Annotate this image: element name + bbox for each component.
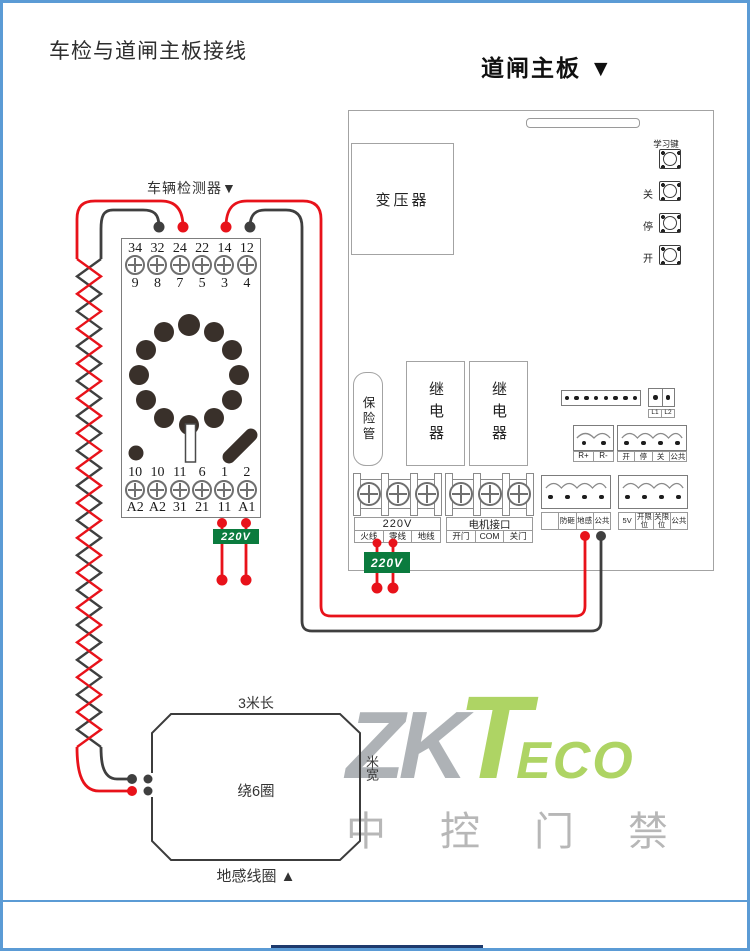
watermark-eco: ECO — [516, 735, 635, 787]
screw-terminal[interactable] — [237, 255, 257, 275]
detector-top-screws — [124, 255, 258, 275]
bottom-divider-line — [3, 900, 747, 902]
remote-connector — [573, 425, 614, 451]
common-label: 公共 — [669, 451, 687, 462]
stop-label: 停 — [634, 451, 652, 462]
board-220v-tag: 220V — [364, 552, 410, 573]
coil-turns-label: 绕6圈 — [151, 780, 361, 801]
ground-wire-label: 地线 — [411, 530, 441, 543]
com-label: COM — [475, 530, 505, 543]
screw-terminal[interactable] — [449, 482, 473, 506]
open-label: 开 — [617, 451, 635, 462]
l1l2-labels: L1 L2 — [648, 409, 675, 418]
screw-terminal[interactable] — [478, 482, 502, 506]
screw-terminal[interactable] — [214, 255, 234, 275]
relay-box: 继电器 — [469, 361, 528, 466]
terminal-number: 11 — [169, 465, 191, 481]
close-limit-label: 关限位 — [653, 512, 671, 530]
sensor-connector — [541, 475, 611, 509]
terminal-number: 1 — [213, 465, 235, 481]
wiring-diagram-page: 车检与道闸主板接线 道闸主板 ▼ 车辆检测器▼ ZKTECO 中 控 门 禁 变… — [0, 0, 750, 951]
motor-terminal-labels: 开门 COM 关门 — [446, 530, 533, 543]
l2-label: L2 — [661, 409, 675, 418]
screw-terminal[interactable] — [147, 255, 167, 275]
screw-terminal[interactable] — [147, 480, 167, 500]
control-connector — [617, 425, 687, 451]
terminal-number: 3 — [213, 276, 235, 292]
terminal-number: 5 — [191, 276, 213, 292]
screw-terminal[interactable] — [357, 482, 381, 506]
relay-box: 继电器 — [406, 361, 465, 466]
screw-terminal[interactable] — [237, 480, 257, 500]
bottom-navy-bar — [271, 945, 483, 951]
screw-terminal[interactable] — [507, 482, 531, 506]
terminal-number: 2 — [236, 465, 258, 481]
open-door-label: 开门 — [446, 530, 476, 543]
power-terminal-block — [354, 479, 441, 509]
terminal-number: 10 — [124, 465, 146, 481]
terminal-number: 6 — [191, 465, 213, 481]
sensor-labels: 防砸 地感 公共 — [541, 512, 611, 530]
terminal-number: A2 — [124, 500, 146, 516]
watermark-chinese: 中 控 门 禁 — [346, 799, 668, 857]
detector-220v-tag: 220V — [213, 529, 259, 544]
screw-terminal[interactable] — [386, 482, 410, 506]
watermark-char: 控 — [440, 799, 480, 857]
relay-label: 继电器 — [488, 381, 509, 447]
terminal-number: 9 — [124, 276, 146, 292]
close-label: 关 — [652, 451, 670, 462]
coil-name-label: 地感线圈 ▲ — [151, 865, 361, 886]
ground-sensor-label: 地感 — [576, 512, 594, 530]
terminal-number: 4 — [236, 276, 258, 292]
transformer-label: 变压器 — [375, 189, 429, 210]
anti-smash-label: 防砸 — [558, 512, 576, 530]
coil-width-label: 米宽 — [362, 755, 381, 781]
screw-terminal[interactable] — [192, 255, 212, 275]
remote-labels: R+ R- — [573, 451, 614, 462]
screw-terminal[interactable] — [170, 255, 190, 275]
board-top-slot — [526, 118, 640, 128]
screw-terminal[interactable] — [192, 480, 212, 500]
learn-button[interactable] — [659, 149, 681, 169]
l1-label: L1 — [648, 409, 662, 418]
open-button[interactable] — [659, 245, 681, 265]
motor-terminal-title: 电机接口 — [446, 517, 533, 531]
terminal-number: 21 — [191, 500, 213, 516]
terminal-number: 7 — [169, 276, 191, 292]
terminal-number: 10 — [146, 465, 168, 481]
terminal-number: 8 — [146, 276, 168, 292]
detector-bottom-pins: A2 A2 31 21 11 A1 — [124, 500, 258, 516]
zkteco-logo: ZKTECO — [346, 679, 668, 797]
terminal-number: A1 — [236, 500, 258, 516]
board-title: 道闸主板 ▼ — [481, 49, 614, 83]
close-door-label: 关门 — [503, 530, 533, 543]
screw-terminal[interactable] — [125, 255, 145, 275]
close-button[interactable] — [659, 181, 681, 201]
terminal-number: A2 — [146, 500, 168, 516]
detector-top-pins: 9 8 7 5 3 4 — [124, 276, 258, 292]
power-terminal-labels: 火线 零线 地线 — [354, 530, 441, 543]
fuse-box: 保险管 — [353, 372, 383, 466]
screw-terminal[interactable] — [125, 480, 145, 500]
control-labels: 开 停 关 公共 — [617, 451, 687, 462]
5v-label: 5V — [618, 512, 636, 530]
watermark-char: 禁 — [628, 799, 668, 857]
screw-terminal[interactable] — [170, 480, 190, 500]
detector-graphics — [121, 295, 261, 470]
screw-terminal[interactable] — [415, 482, 439, 506]
watermark-char: 门 — [534, 799, 574, 857]
stop-button[interactable] — [659, 213, 681, 233]
fuse-label: 保险管 — [359, 396, 378, 443]
zkteco-watermark: ZKTECO 中 控 门 禁 — [346, 679, 668, 857]
limit-connector — [618, 475, 688, 509]
neutral-wire-label: 零线 — [383, 530, 413, 543]
terminal-number: 31 — [169, 500, 191, 516]
blank-label — [541, 512, 559, 530]
detector-bottom-numbers: 10 10 11 6 1 2 — [124, 465, 258, 481]
live-wire-label: 火线 — [354, 530, 384, 543]
relay-label: 继电器 — [425, 381, 446, 447]
coil-length-label: 3米长 — [151, 693, 361, 713]
power-terminal-title: 220V — [354, 517, 441, 531]
detector-title: 车辆检测器▼ — [147, 178, 237, 198]
limit-labels: 5V 开限位 关限位 公共 — [618, 512, 688, 530]
close-button-label: 关 — [643, 186, 653, 201]
motor-terminal-block — [446, 479, 533, 509]
limit-common-label: 公共 — [670, 512, 688, 530]
pin-header — [561, 390, 641, 406]
r-plus-label: R+ — [573, 451, 594, 462]
page-title: 车检与道闸主板接线 — [49, 35, 247, 65]
stop-button-label: 停 — [643, 218, 653, 233]
r-minus-label: R- — [593, 451, 614, 462]
sensor-common-label: 公共 — [593, 512, 611, 530]
open-limit-label: 开限位 — [635, 512, 653, 530]
terminal-number: 11 — [213, 500, 235, 516]
transformer-box: 变压器 — [351, 143, 454, 255]
screw-terminal[interactable] — [214, 480, 234, 500]
open-button-label: 开 — [643, 250, 653, 265]
detector-bottom-screws — [124, 480, 258, 500]
l1l2-connector — [648, 388, 675, 407]
